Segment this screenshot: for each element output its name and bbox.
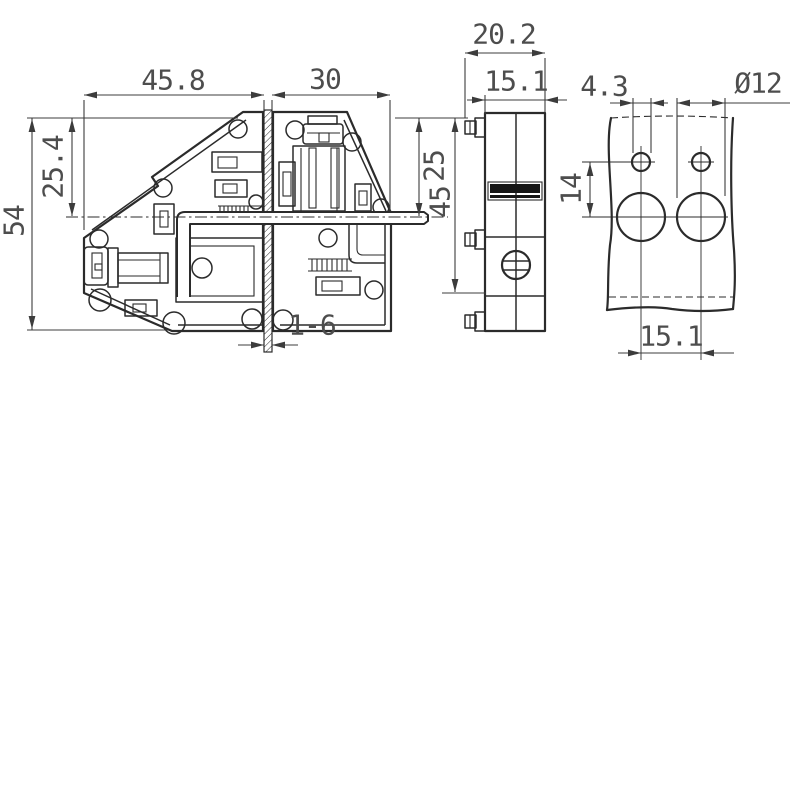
technical-drawing-page: 45.8 30 54 25.4 xyxy=(0,0,800,800)
dim-label: 25.4 xyxy=(37,135,70,199)
dim-label: 20.2 xyxy=(472,18,535,51)
dim-label: 15.1 xyxy=(639,320,702,353)
dim-label: 15.1 xyxy=(484,65,547,98)
housing-hole xyxy=(249,195,263,209)
housing-hole xyxy=(229,120,247,138)
panel-break-edge xyxy=(607,307,733,311)
solder-pin xyxy=(465,118,485,137)
terminal-screw xyxy=(293,116,345,211)
dim-14: 14 xyxy=(555,162,594,217)
panel-hidden-edge xyxy=(611,116,733,118)
marking-band xyxy=(488,182,542,200)
side-section-view xyxy=(66,110,448,352)
contact-comb xyxy=(308,259,352,271)
dim-15-1-plan: 15.1 xyxy=(618,320,734,357)
housing-hole xyxy=(365,281,383,299)
dim-label: 1-6 xyxy=(288,309,336,342)
solder-pin xyxy=(465,230,485,249)
dim-label: 54 xyxy=(0,205,31,237)
solder-pin xyxy=(465,312,485,331)
housing-hole xyxy=(192,258,212,278)
housing-hole xyxy=(319,229,337,247)
clamp-screw xyxy=(108,248,168,287)
housing-hole xyxy=(286,121,304,139)
front-body-outline xyxy=(485,113,545,331)
dimensions: 45.8 30 54 25.4 xyxy=(0,18,790,357)
dim-label: 45.8 xyxy=(141,64,205,97)
dim-label: 45 xyxy=(424,186,457,218)
dim-45: 45 xyxy=(424,118,487,293)
terminal-block-drawing: 45.8 30 54 25.4 xyxy=(0,0,800,800)
housing-hole xyxy=(242,309,262,329)
dim-15-1-front: 15.1 xyxy=(467,65,567,115)
wire-clamp xyxy=(84,247,108,285)
partition-plate-hatch xyxy=(264,110,272,352)
dim-label: 4.3 xyxy=(580,70,628,103)
bent-wire xyxy=(349,221,385,263)
dim-label: Ø12 xyxy=(734,67,782,100)
dim-label: 25 xyxy=(418,150,451,182)
panel-break-edge xyxy=(731,118,735,309)
dim-label: 30 xyxy=(309,63,341,96)
dim-dia-12: Ø12 xyxy=(677,67,790,199)
housing-hole xyxy=(90,230,108,248)
dim-25-4: 25.4 xyxy=(37,118,76,216)
front-view xyxy=(465,113,545,331)
bent-wire xyxy=(357,221,385,255)
dim-4-3: 4.3 xyxy=(580,70,668,154)
dim-label: 14 xyxy=(555,173,588,205)
panel-break-edge xyxy=(607,118,612,310)
